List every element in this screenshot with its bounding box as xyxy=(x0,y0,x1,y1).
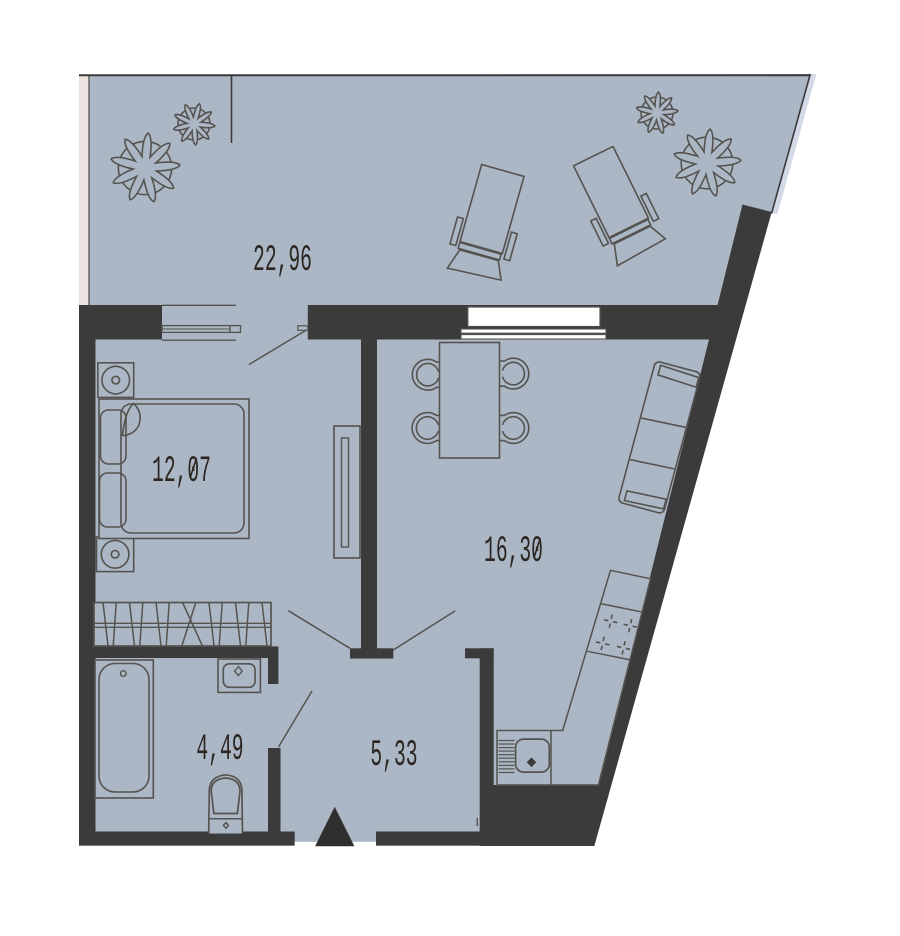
svg-text:4,49: 4,49 xyxy=(196,728,243,771)
svg-text:22,96: 22,96 xyxy=(253,239,312,282)
svg-text:16,30: 16,30 xyxy=(484,530,543,573)
svg-text:5,33: 5,33 xyxy=(370,734,417,777)
svg-text:12,07: 12,07 xyxy=(152,450,211,493)
